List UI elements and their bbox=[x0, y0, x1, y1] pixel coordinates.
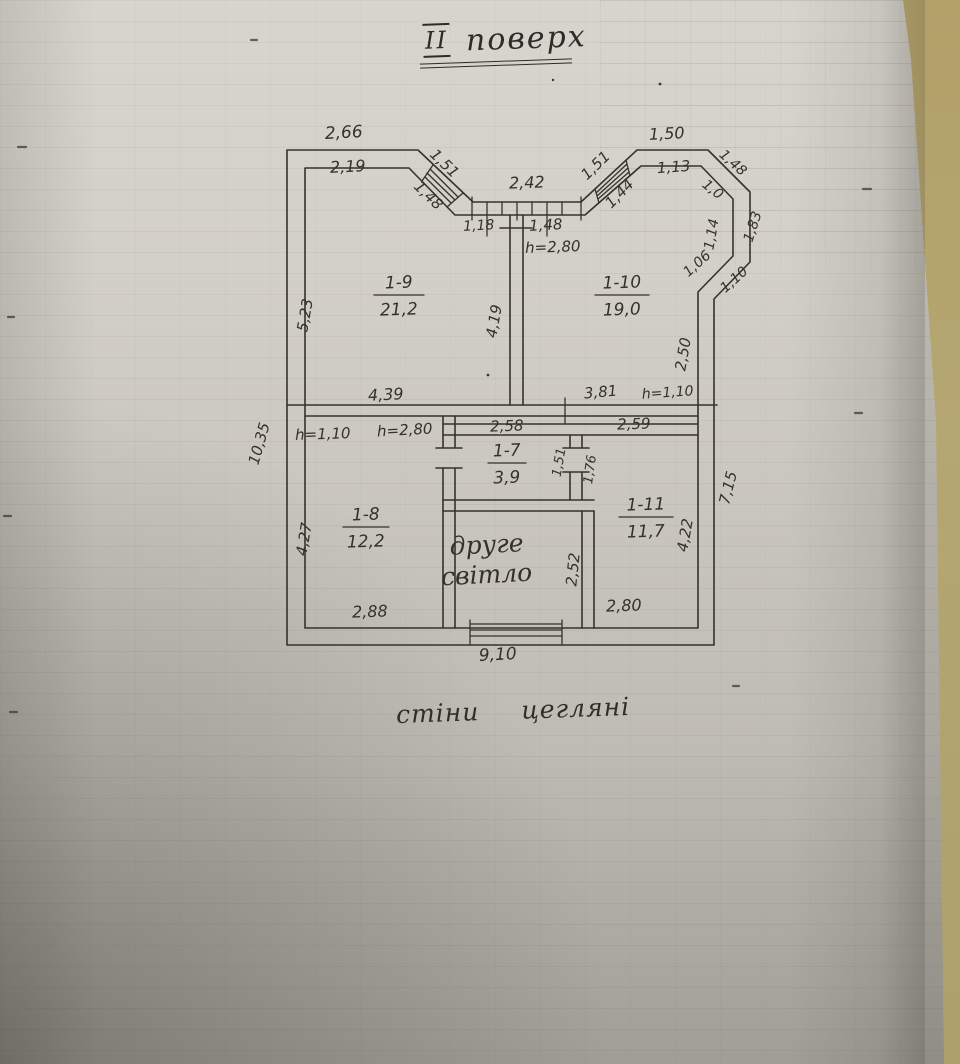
dimension-label: 2,58 bbox=[490, 416, 524, 435]
room-1-8-right-wall bbox=[436, 416, 462, 628]
dimension-label: 2,59 bbox=[617, 414, 651, 433]
dimension-label: h=1,10 bbox=[641, 383, 694, 403]
dimension-label: 1,76 bbox=[581, 454, 600, 485]
dimension-label: 7,15 bbox=[715, 469, 741, 506]
room-number: 1-7 bbox=[493, 441, 522, 462]
dimension-label: 1,50 bbox=[648, 123, 685, 144]
floor-plan-drawing: 2,662,191,511,482,421,181,48h=2,801,511,… bbox=[0, 0, 960, 1064]
dimension-label: 1,18 bbox=[463, 217, 495, 235]
dimension-label: h=2,80 bbox=[525, 237, 581, 257]
bottom-window bbox=[470, 620, 562, 645]
plan-labels: 2,662,191,511,482,421,181,48h=2,801,511,… bbox=[245, 122, 766, 666]
second-light-label: друге bbox=[449, 528, 524, 561]
dimension-label: 1,48 bbox=[529, 215, 563, 235]
dimension-label: 5,23 bbox=[293, 297, 317, 333]
wall-note-word: цегляні bbox=[521, 692, 631, 725]
dimension-label: 1,10 bbox=[717, 264, 751, 297]
knee-wall bbox=[443, 424, 698, 435]
dimension-label: 4,27 bbox=[292, 521, 316, 557]
dimension-label: 1,14 bbox=[701, 218, 722, 251]
photographed-floor-plan-page: IIповерх 2,662,191,511,482,421,181,48h=2… bbox=[0, 0, 960, 1064]
photo-artifact-marks bbox=[4, 40, 871, 712]
room-area: 3,9 bbox=[493, 468, 521, 489]
dimension-label: 1,83 bbox=[741, 209, 766, 244]
dimension-label: 1,06 bbox=[680, 248, 714, 281]
dimension-label: 3,81 bbox=[583, 382, 618, 403]
room-1-11-left-wall bbox=[582, 511, 594, 628]
room-number: 1-9 bbox=[385, 273, 413, 294]
dimension-label: 2,42 bbox=[509, 172, 545, 192]
dimension-label: 4,22 bbox=[673, 517, 697, 553]
dimension-label: 1,13 bbox=[656, 157, 691, 177]
middle-wall bbox=[288, 405, 717, 416]
dimension-label: h=2,80 bbox=[377, 420, 433, 441]
room-1-7-bottom-wall bbox=[443, 500, 594, 511]
room-number: 1-11 bbox=[626, 494, 665, 515]
room-number: 1-8 bbox=[352, 505, 381, 526]
dimension-label: 1,51 bbox=[550, 447, 570, 478]
photo-artifact-dot bbox=[487, 374, 490, 377]
photo-artifact-dot bbox=[552, 79, 554, 81]
dimension-label: 4,19 bbox=[482, 303, 506, 339]
room-area: 19,0 bbox=[603, 299, 642, 320]
dimension-label: 2,88 bbox=[352, 601, 388, 621]
dimension-label: 2,19 bbox=[329, 156, 366, 177]
room-area: 21,2 bbox=[380, 299, 419, 320]
dimension-label: 10,35 bbox=[245, 420, 274, 466]
dimension-label: 1,44 bbox=[601, 175, 637, 212]
dimension-label: 1,48 bbox=[410, 177, 447, 213]
dimension-label: 9,10 bbox=[478, 644, 517, 666]
room-area: 11,7 bbox=[627, 521, 666, 542]
dimension-label: 2,52 bbox=[562, 552, 583, 587]
dimension-label: 2,50 bbox=[671, 336, 695, 372]
room-number: 1-10 bbox=[602, 272, 641, 293]
dimension-label: 4,39 bbox=[367, 384, 404, 405]
dimension-label: 2,80 bbox=[606, 595, 642, 615]
dimension-label: 1,0 bbox=[699, 177, 726, 203]
second-light-label: світло bbox=[440, 558, 533, 592]
dimension-label: 2,66 bbox=[324, 122, 363, 144]
wall-note-word: стіни bbox=[396, 697, 480, 729]
dimension-label: 1,51 bbox=[577, 147, 614, 183]
dimension-label: h=1,10 bbox=[295, 424, 351, 444]
photo-artifact-dot bbox=[659, 83, 662, 86]
room-area: 12,2 bbox=[347, 531, 386, 552]
